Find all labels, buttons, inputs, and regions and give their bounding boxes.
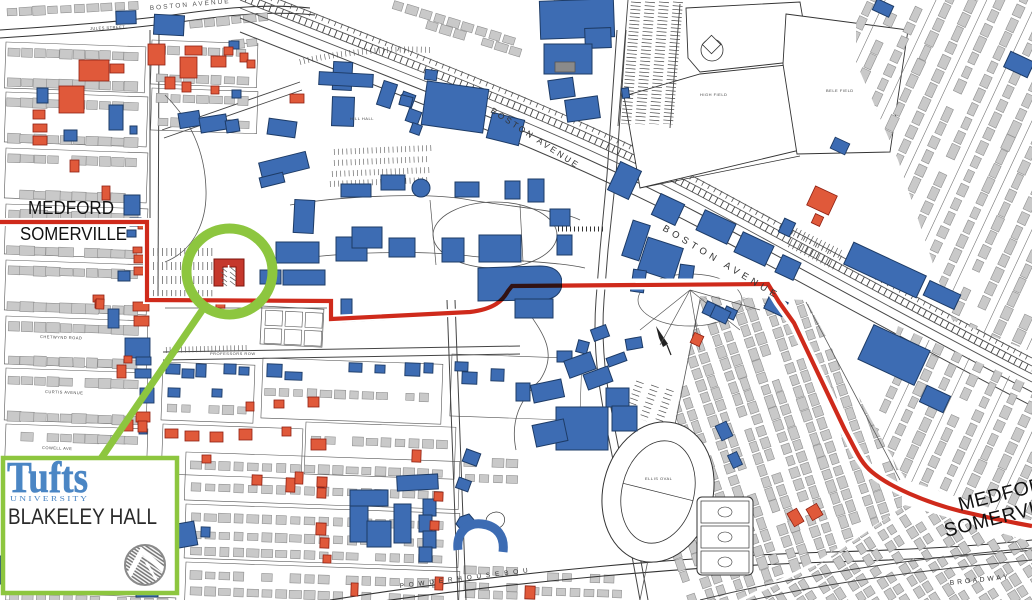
svg-text:U N I V E R S I T Y: U N I V E R S I T Y [10,495,87,503]
svg-text:HIGH FIELD: HIGH FIELD [700,92,727,97]
svg-text:MEDFORD: MEDFORD [28,198,114,218]
svg-text:COWELL AVE: COWELL AVE [42,445,72,451]
svg-text:BELE FIELD: BELE FIELD [826,88,854,93]
svg-text:HILL HALL: HILL HALL [350,116,374,121]
svg-text:ELLIS OVAL: ELLIS OVAL [645,476,673,481]
svg-text:BLAKELEY HALL: BLAKELEY HALL [8,504,157,529]
svg-text:PROFESSORS ROW: PROFESSORS ROW [210,351,256,356]
svg-text:SOMERVILLE: SOMERVILLE [20,224,127,244]
